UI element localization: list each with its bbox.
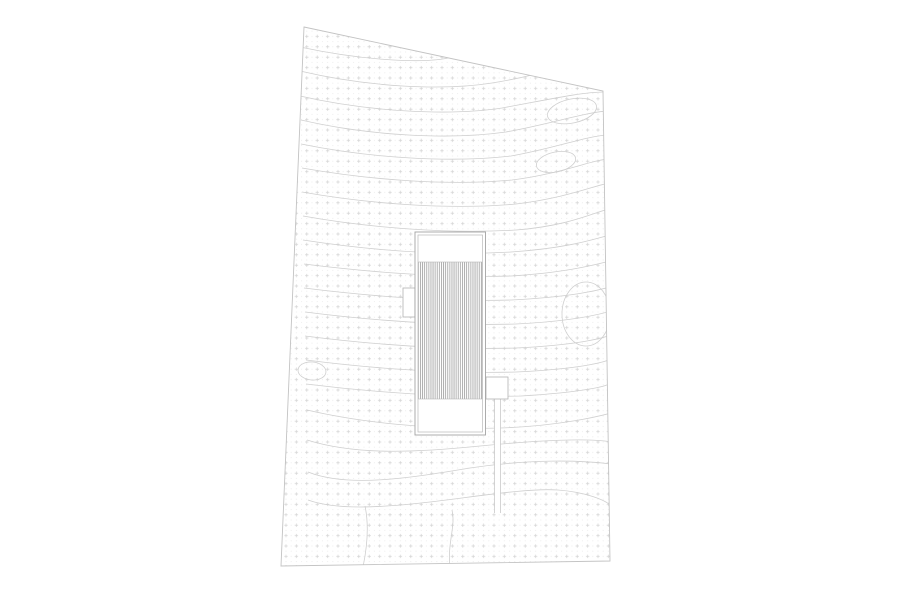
site-plan-drawing [0,0,900,600]
building-annex-left [403,288,415,317]
building-annex-right [486,377,508,399]
driveway-path [495,399,501,513]
building-footprint [415,232,486,435]
site-plan-canvas [0,0,900,600]
building-roof-hatch [419,262,483,399]
